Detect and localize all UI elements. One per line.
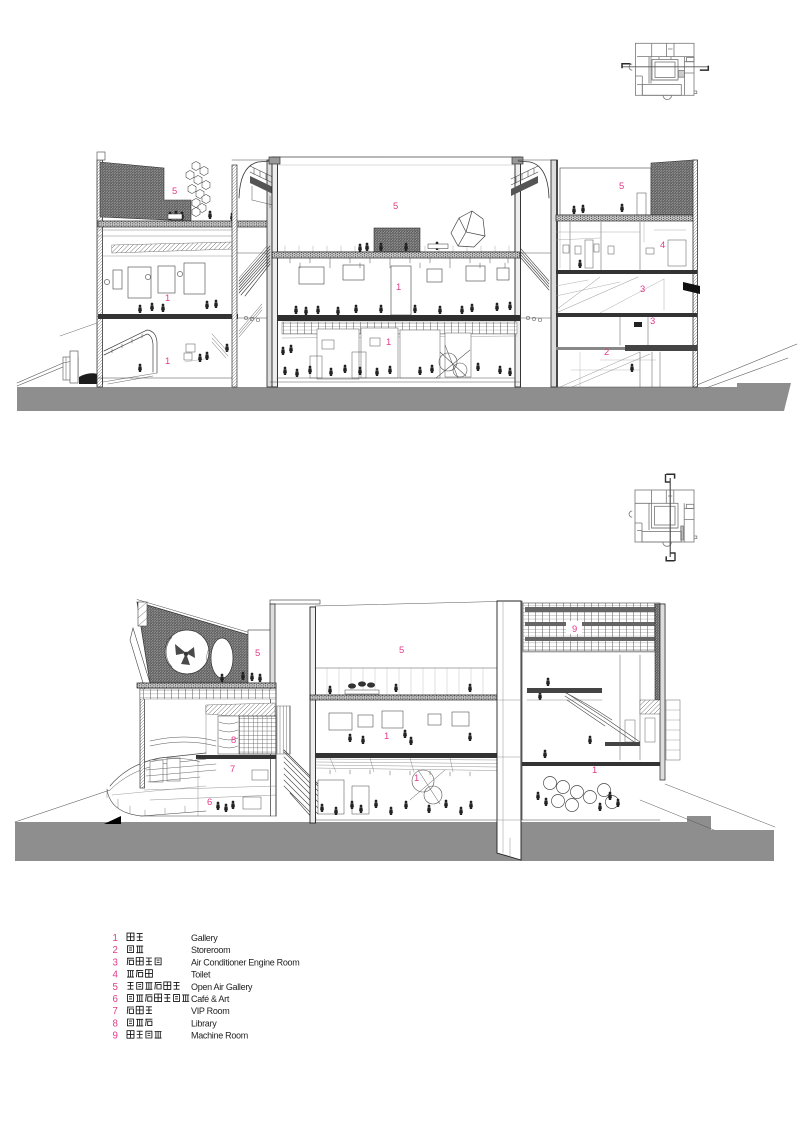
svg-text:8: 8 [113,1018,118,1029]
svg-text:5: 5 [172,185,177,196]
svg-text:5: 5 [113,982,118,993]
svg-text:Air Conditioner Engine Room: Air Conditioner Engine Room [191,957,299,967]
svg-text:Library: Library [191,1018,217,1028]
svg-text:Open Air Gallery: Open Air Gallery [191,982,253,992]
svg-text:8: 8 [231,734,236,745]
svg-text:9: 9 [572,623,577,634]
svg-text:1: 1 [384,730,389,741]
svg-text:3: 3 [113,957,118,968]
svg-text:2: 2 [113,945,118,956]
svg-text:1: 1 [414,772,419,783]
svg-text:6: 6 [113,994,118,1005]
svg-text:1: 1 [113,933,118,944]
svg-text:1: 1 [396,281,401,292]
svg-text:Storeroom: Storeroom [191,945,230,955]
svg-text:VIP Room: VIP Room [191,1006,229,1016]
svg-text:6: 6 [207,796,212,807]
svg-text:Gallery: Gallery [191,933,218,943]
svg-text:1: 1 [165,292,170,303]
svg-text:Machine Room: Machine Room [191,1031,248,1041]
svg-text:5: 5 [393,200,398,211]
svg-text:7: 7 [230,763,235,774]
svg-text:4: 4 [660,239,665,250]
svg-text:1: 1 [165,355,170,366]
svg-text:4: 4 [113,970,119,981]
svg-text:9: 9 [113,1031,118,1042]
svg-text:Toilet: Toilet [191,970,211,980]
svg-text:5: 5 [399,644,404,655]
svg-text:Café & Art: Café & Art [191,994,230,1004]
svg-text:1: 1 [386,336,391,347]
svg-text:3: 3 [640,283,645,294]
svg-text:3: 3 [650,315,655,326]
svg-text:2: 2 [604,346,609,357]
svg-text:5: 5 [255,647,260,658]
svg-text:7: 7 [113,1006,118,1017]
svg-text:5: 5 [619,180,624,191]
